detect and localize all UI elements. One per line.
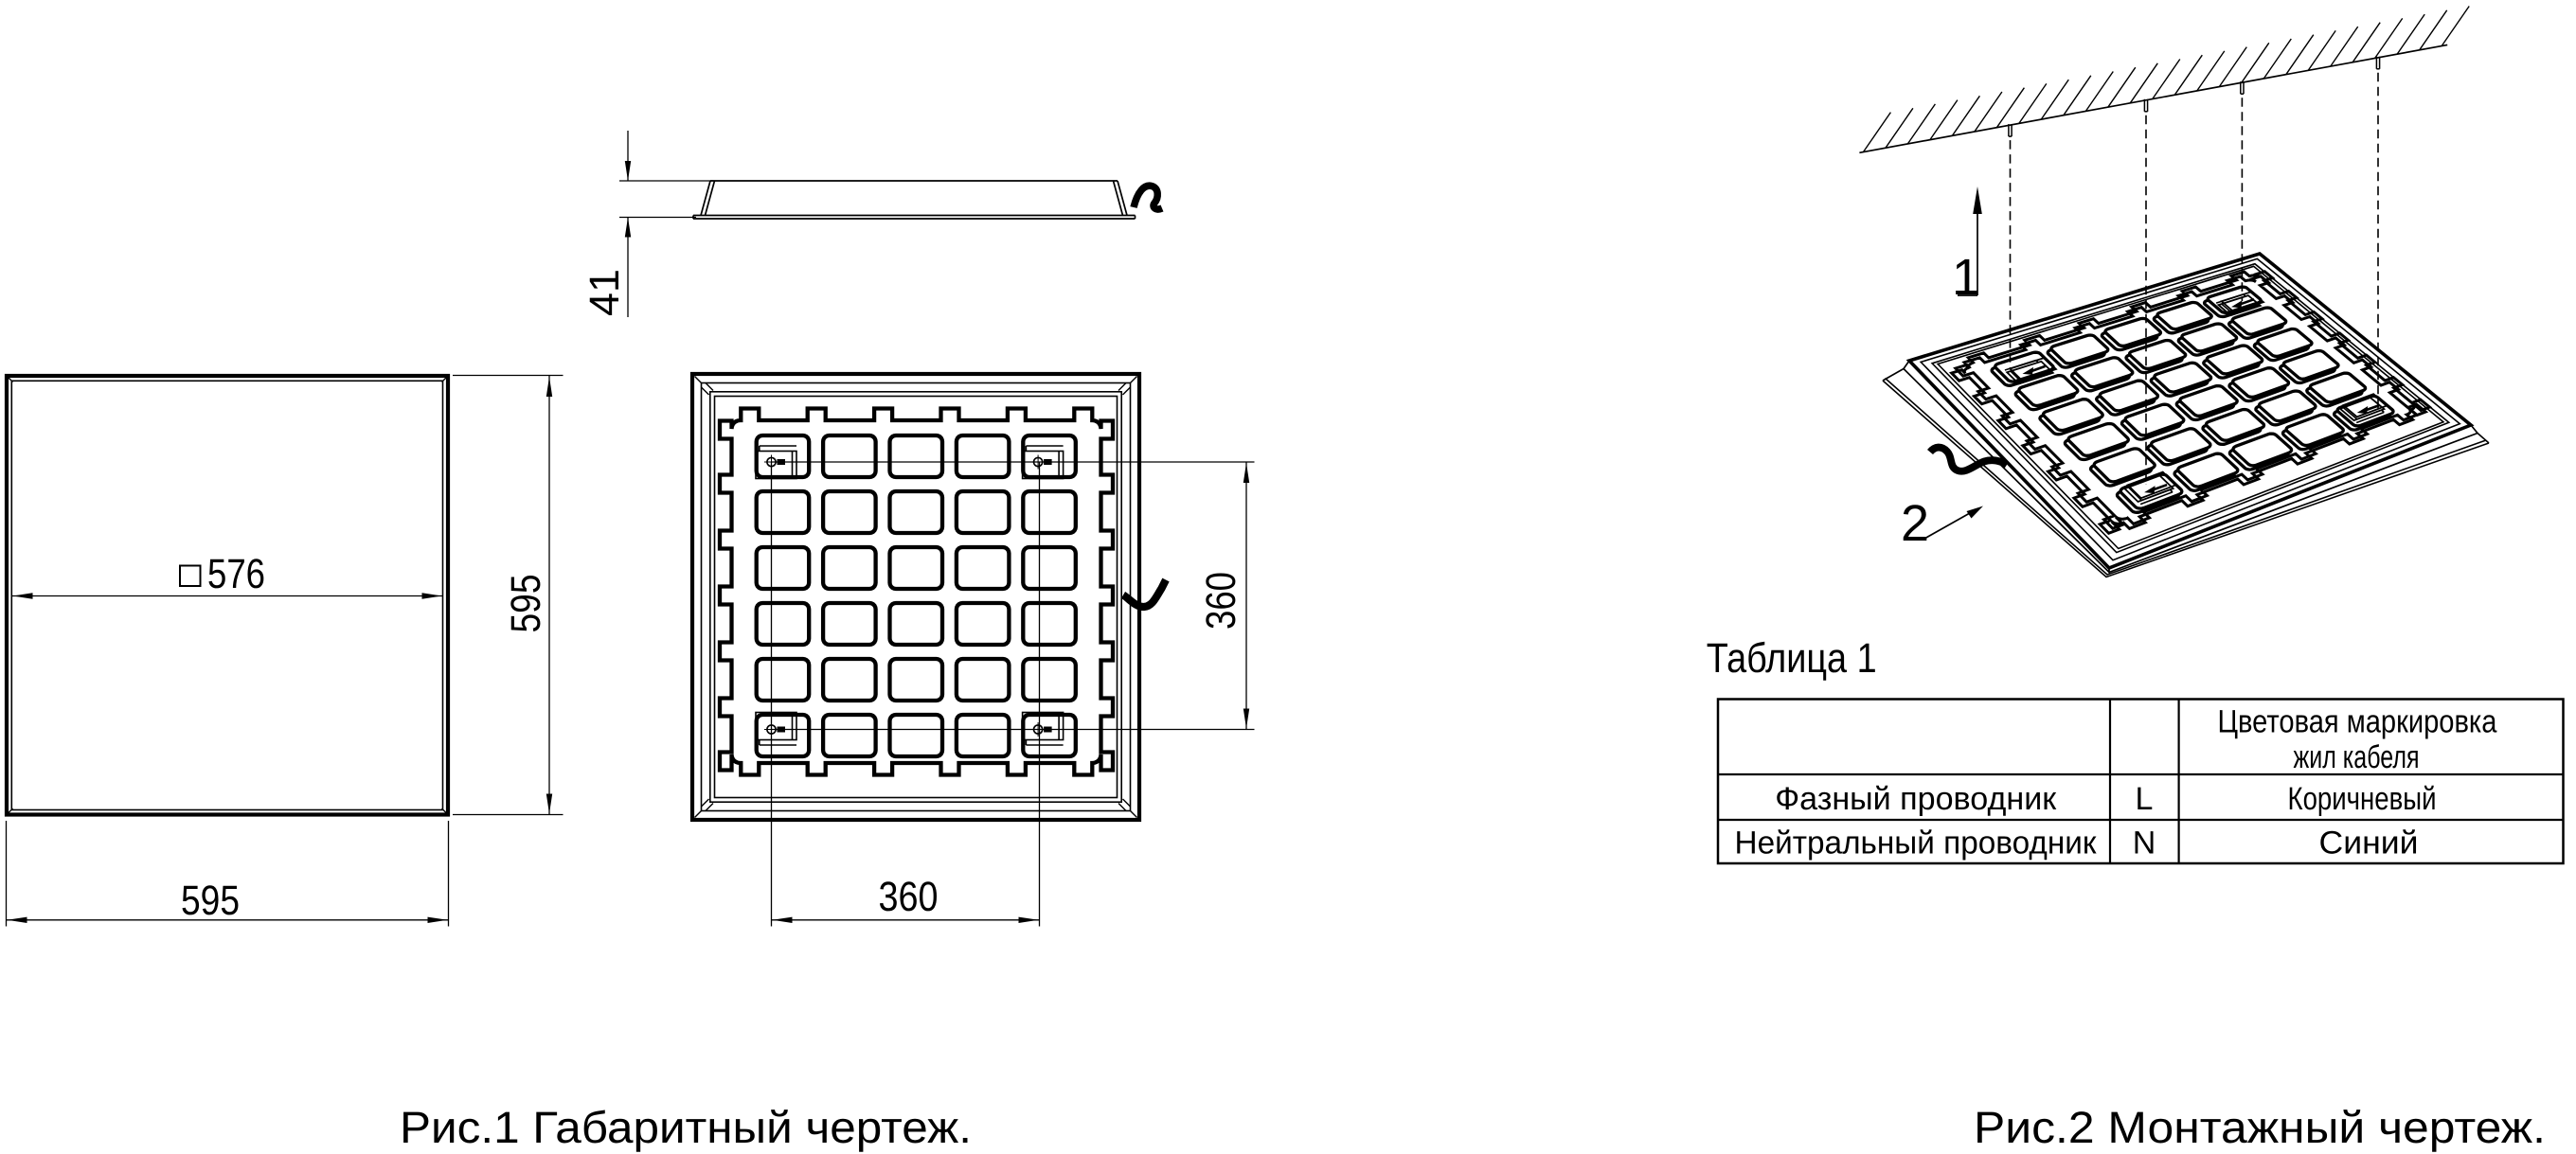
svg-text:41: 41 [581,269,628,316]
svg-text:1: 1 [1952,249,1980,306]
svg-text:576: 576 [207,551,265,597]
svg-text:Таблица 1: Таблица 1 [1707,635,1877,682]
svg-text:2: 2 [1901,495,1929,552]
svg-text:595: 595 [181,878,240,924]
svg-text:Коричневый: Коричневый [2288,781,2437,817]
svg-text:360: 360 [1198,572,1244,630]
svg-text:жил кабеля: жил кабеля [2294,739,2420,775]
svg-text:Цветовая маркировка: Цветовая маркировка [2218,704,2497,740]
svg-text:360: 360 [879,874,939,920]
svg-text:Нейтральный проводник: Нейтральный проводник [1735,826,2098,861]
svg-text:595: 595 [503,575,549,633]
svg-text:N: N [2133,826,2156,861]
svg-text:Рис.2 Монтажный чертеж.: Рис.2 Монтажный чертеж. [1974,1102,2546,1152]
svg-text:Фазный проводник: Фазный проводник [1775,781,2057,817]
svg-text:L: L [2136,781,2154,817]
svg-text:Рис.1 Габаритный чертеж.: Рис.1 Габаритный чертеж. [400,1102,972,1152]
svg-text:Синий: Синий [2319,826,2419,861]
